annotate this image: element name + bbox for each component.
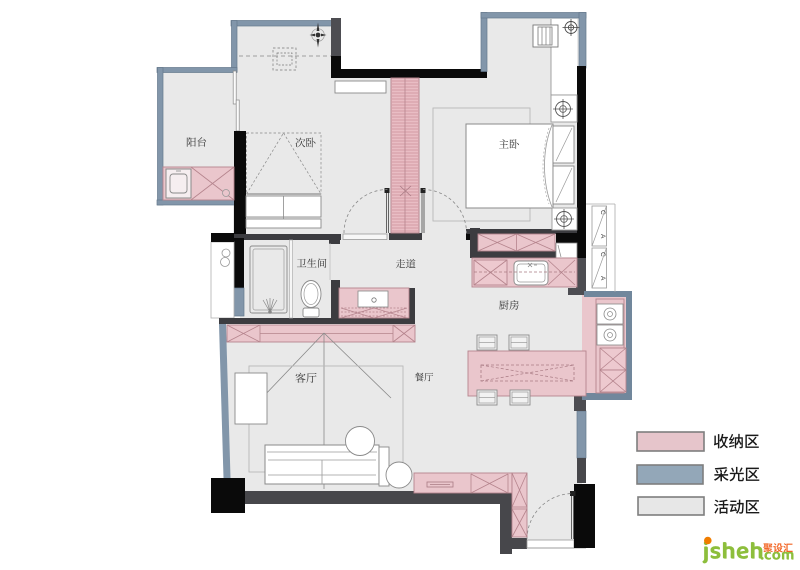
svg-text:A: A [599, 276, 606, 281]
svg-text:A: A [599, 234, 606, 239]
svg-text:C: C [599, 210, 606, 215]
svg-text:C: C [599, 252, 606, 257]
